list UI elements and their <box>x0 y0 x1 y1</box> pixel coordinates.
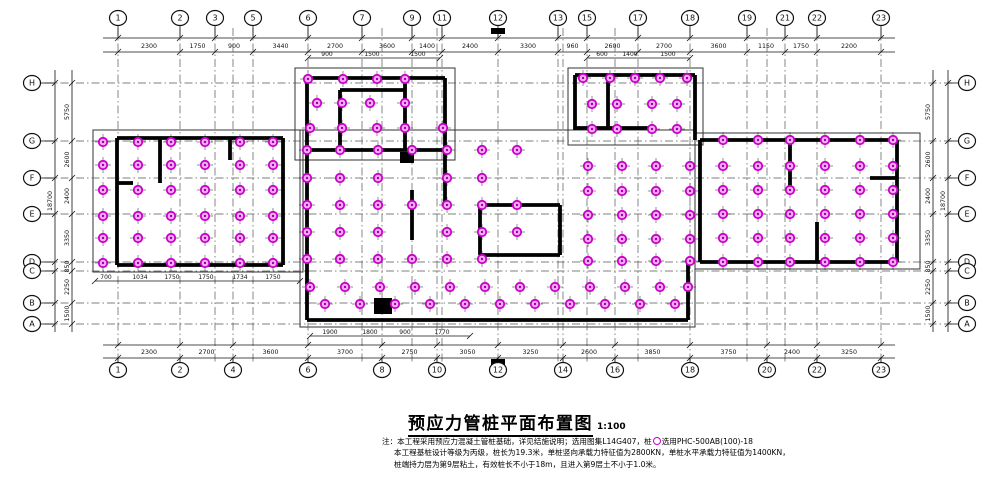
svg-text:2700: 2700 <box>656 43 672 50</box>
pile-symbol <box>614 183 630 199</box>
svg-text:A: A <box>29 320 35 329</box>
note-line-3: 桩端持力层为第9层粘土，有效桩长不小于18m，且进入第9层土不小于1.0米。 <box>394 459 790 470</box>
pile-symbol <box>474 197 490 213</box>
grid-bubble: 23 <box>873 11 890 26</box>
svg-text:960: 960 <box>566 43 578 50</box>
svg-text:2200: 2200 <box>841 43 857 50</box>
pile-symbol <box>370 251 386 267</box>
grid-bubble: 1 <box>110 363 127 378</box>
pile-symbol <box>609 96 625 112</box>
grid-bubble: 17 <box>630 11 647 26</box>
pile-symbol <box>609 121 625 137</box>
pile-symbol <box>265 157 281 173</box>
svg-text:8: 8 <box>379 366 384 375</box>
svg-text:3: 3 <box>212 14 217 23</box>
pile-symbol <box>163 230 179 246</box>
pile-symbol <box>652 70 668 86</box>
svg-text:600: 600 <box>596 51 608 58</box>
grid-bubble: 2 <box>172 363 189 378</box>
pile-symbol <box>130 208 146 224</box>
grid-bubble: G <box>959 134 976 149</box>
note-line-1: 注：本工程采用预应力混凝土管桩基础，详见结施说明；选用图集L14G407，桩选用… <box>382 436 790 447</box>
pile-symbol <box>682 183 698 199</box>
pile-symbol <box>265 182 281 198</box>
pile-symbol <box>852 206 868 222</box>
svg-text:2400: 2400 <box>462 43 478 50</box>
svg-text:1734: 1734 <box>232 274 247 281</box>
svg-text:2600: 2600 <box>64 151 71 167</box>
svg-text:1500: 1500 <box>660 51 675 58</box>
pile-symbol <box>715 206 731 222</box>
svg-text:3250: 3250 <box>522 349 538 356</box>
pile-plan-svg: 2300175090034402700360014002400330096026… <box>0 0 1000 477</box>
grid-bubble: 13 <box>550 11 567 26</box>
grid-bubble: 2 <box>172 11 189 26</box>
pile-symbol <box>614 253 630 269</box>
pile-symbol <box>130 255 146 271</box>
pile-symbol <box>547 279 563 295</box>
pile-symbol <box>575 70 591 86</box>
svg-text:15: 15 <box>582 14 592 23</box>
grid-bubble: 1 <box>110 11 127 26</box>
pile-symbol <box>512 279 528 295</box>
pile-symbol <box>370 224 386 240</box>
pile-symbol <box>782 158 798 174</box>
grid-bubble: 12 <box>490 363 507 378</box>
svg-text:1770: 1770 <box>434 329 449 336</box>
drawing-canvas: 2300175090034402700360014002400330096026… <box>0 0 1000 477</box>
svg-text:2300: 2300 <box>141 43 157 50</box>
pile-symbol <box>265 255 281 271</box>
pile-symbol <box>369 71 385 87</box>
pile-symbol <box>332 170 348 186</box>
grid-bubble: 23 <box>873 363 890 378</box>
pile-symbol <box>509 224 525 240</box>
pile-symbol <box>439 251 455 267</box>
pile-symbol <box>95 255 111 271</box>
pile-symbol <box>782 206 798 222</box>
pile-symbol <box>300 71 316 87</box>
pile-symbol <box>667 296 683 312</box>
pile-symbol <box>369 120 385 136</box>
pile-symbol <box>492 296 508 312</box>
pile-symbol <box>442 279 458 295</box>
pile-symbol <box>232 255 248 271</box>
pile-symbol <box>750 182 766 198</box>
pile-symbol <box>648 183 664 199</box>
dimension-lines: 2300175090034402700360014002400330096026… <box>47 35 951 361</box>
pile-symbol <box>580 158 596 174</box>
svg-text:16: 16 <box>610 366 620 375</box>
grid-bubble: C <box>959 264 976 279</box>
pile-symbol <box>682 207 698 223</box>
pile-symbol <box>370 170 386 186</box>
svg-text:6: 6 <box>305 366 310 375</box>
svg-text:3750: 3750 <box>720 349 736 356</box>
pile-symbol <box>197 157 213 173</box>
grid-bubble: 3 <box>207 11 224 26</box>
grid-bubble: 12 <box>490 11 507 26</box>
grid-bubble: 7 <box>354 11 371 26</box>
svg-text:23: 23 <box>876 14 886 23</box>
pile-symbol <box>397 95 413 111</box>
svg-text:G: G <box>964 137 970 146</box>
drawing-title: 预应力管桩平面布置图1:100 <box>408 409 626 434</box>
grid-bubble: H <box>24 76 41 91</box>
pile-symbol <box>852 182 868 198</box>
pile-symbol <box>782 230 798 246</box>
grid-bubble: A <box>959 317 976 332</box>
grid-bubble: 4 <box>225 363 242 378</box>
pile-symbol <box>370 142 386 158</box>
svg-text:3050: 3050 <box>459 349 475 356</box>
pile-symbol <box>682 158 698 174</box>
grid-bubble: 18 <box>682 11 699 26</box>
pile-symbol <box>852 230 868 246</box>
pile-symbol <box>332 224 348 240</box>
pile-symbol <box>527 296 543 312</box>
grid-bubble: 22 <box>809 363 826 378</box>
pile-symbol <box>584 121 600 137</box>
svg-text:17: 17 <box>633 14 643 23</box>
pile-symbol <box>477 279 493 295</box>
svg-text:1500: 1500 <box>410 51 425 58</box>
svg-text:700: 700 <box>100 274 112 281</box>
grid-bubble: A <box>24 317 41 332</box>
svg-text:1: 1 <box>115 14 120 23</box>
pile-symbol <box>648 253 664 269</box>
pile-symbol <box>644 96 660 112</box>
svg-text:850: 850 <box>925 260 932 272</box>
pile-symbol <box>750 132 766 148</box>
pile-symbol <box>95 230 111 246</box>
svg-text:2400: 2400 <box>925 188 932 204</box>
pile-symbol <box>299 197 315 213</box>
svg-text:22: 22 <box>812 14 822 23</box>
svg-text:2700: 2700 <box>198 349 214 356</box>
pile-symbol <box>750 206 766 222</box>
pile-symbol <box>404 251 420 267</box>
svg-text:C: C <box>29 267 35 276</box>
svg-text:3250: 3250 <box>841 349 857 356</box>
svg-text:1500: 1500 <box>925 305 932 321</box>
pile-symbol <box>352 296 368 312</box>
svg-text:6: 6 <box>305 14 310 23</box>
pile-symbol <box>404 197 420 213</box>
svg-text:7: 7 <box>359 14 364 23</box>
pile-symbol <box>648 158 664 174</box>
svg-text:1400: 1400 <box>622 51 637 58</box>
pile-symbol <box>817 254 833 270</box>
svg-text:2400: 2400 <box>64 188 71 204</box>
pile-symbol <box>474 142 490 158</box>
svg-text:1750: 1750 <box>189 43 205 50</box>
svg-text:3350: 3350 <box>925 230 932 246</box>
grid-bubble: E <box>959 207 976 222</box>
pile-symbol <box>197 182 213 198</box>
pile-symbol <box>817 230 833 246</box>
grid-bubble: F <box>959 171 976 186</box>
pile-symbol <box>817 132 833 148</box>
pile-symbol <box>95 208 111 224</box>
svg-text:2600: 2600 <box>604 43 620 50</box>
pile-symbol <box>852 254 868 270</box>
svg-text:9: 9 <box>409 14 414 23</box>
pile-symbol <box>614 158 630 174</box>
svg-text:F: F <box>30 174 35 183</box>
pile-symbol <box>750 254 766 270</box>
pile-symbol <box>614 207 630 223</box>
pile-symbol <box>309 95 325 111</box>
pile-symbol <box>602 70 618 86</box>
svg-text:14: 14 <box>558 366 568 375</box>
grid-bubble: E <box>24 207 41 222</box>
pile-symbol <box>332 197 348 213</box>
grid-bubble: 18 <box>682 363 699 378</box>
grid-bubble: 6 <box>300 363 317 378</box>
pile-symbol <box>397 120 413 136</box>
svg-text:3600: 3600 <box>710 43 726 50</box>
pile-symbol <box>335 71 351 87</box>
svg-text:12: 12 <box>493 14 503 23</box>
pile-symbol <box>397 71 413 87</box>
grid-bubble: G <box>24 134 41 149</box>
pile-symbol <box>580 253 596 269</box>
svg-text:2400: 2400 <box>784 349 800 356</box>
pile-symbol <box>299 251 315 267</box>
pile-symbol <box>232 157 248 173</box>
svg-text:1750: 1750 <box>793 43 809 50</box>
title-scale: 1:100 <box>597 422 626 432</box>
pile-symbol <box>669 96 685 112</box>
pile-symbol <box>715 158 731 174</box>
pile-symbol <box>817 182 833 198</box>
pile-symbol <box>669 121 685 137</box>
pile-symbol <box>644 121 660 137</box>
svg-text:1750: 1750 <box>265 274 280 281</box>
pile-symbol <box>299 142 315 158</box>
pile-symbol <box>782 254 798 270</box>
grid-bubble: 8 <box>374 363 391 378</box>
pile-symbol <box>299 224 315 240</box>
title-text: 预应力管桩平面布置图 <box>408 414 593 437</box>
pile-symbol <box>337 279 353 295</box>
svg-text:H: H <box>29 79 35 88</box>
grid-bubble: 11 <box>434 11 451 26</box>
svg-text:1750: 1750 <box>164 274 179 281</box>
pile-symbol <box>680 279 696 295</box>
bubble-stems <box>40 26 959 364</box>
pile-symbol <box>597 296 613 312</box>
pile-symbol <box>715 182 731 198</box>
grid-bubble: 20 <box>759 363 776 378</box>
pile-symbol <box>627 70 643 86</box>
pile-symbol <box>435 120 451 136</box>
svg-text:A: A <box>964 320 970 329</box>
pile-symbol <box>130 230 146 246</box>
grid-bubble: B <box>24 296 41 311</box>
building-outlines <box>93 68 920 327</box>
pile-symbol <box>232 182 248 198</box>
svg-text:3300: 3300 <box>520 43 536 50</box>
pile-symbol <box>562 296 578 312</box>
svg-text:5750: 5750 <box>925 104 932 120</box>
svg-text:5: 5 <box>250 14 255 23</box>
grid-bubble: 19 <box>739 11 756 26</box>
pile-symbol <box>334 95 350 111</box>
pile-symbol <box>302 120 318 136</box>
pile-symbol <box>317 296 333 312</box>
pile-symbol <box>232 230 248 246</box>
svg-text:2: 2 <box>177 14 182 23</box>
svg-text:18700: 18700 <box>47 191 54 211</box>
grid-bubble: F <box>24 171 41 186</box>
svg-text:2250: 2250 <box>64 279 71 295</box>
pile-symbol <box>852 158 868 174</box>
pile-symbol <box>715 230 731 246</box>
pile-symbol <box>372 279 388 295</box>
pile-symbol <box>197 255 213 271</box>
svg-text:900: 900 <box>399 329 411 336</box>
svg-text:20: 20 <box>762 366 772 375</box>
pile-symbol <box>197 208 213 224</box>
note-line-2: 本工程基桩设计等级为丙级，桩长为19.3米，单桩竖向承载力特征值为2800KN，… <box>394 447 790 458</box>
pile-symbol <box>163 182 179 198</box>
shear-walls <box>117 75 897 320</box>
svg-text:H: H <box>964 79 970 88</box>
svg-text:1034: 1034 <box>132 274 147 281</box>
pile-symbol <box>299 170 315 186</box>
svg-text:11: 11 <box>437 14 447 23</box>
svg-text:3350: 3350 <box>64 230 71 246</box>
svg-text:18700: 18700 <box>940 191 947 211</box>
svg-text:3700: 3700 <box>337 349 353 356</box>
pile-symbol <box>584 96 600 112</box>
pile-symbol <box>715 254 731 270</box>
pile-symbol <box>632 296 648 312</box>
grid-bubble: 9 <box>404 11 421 26</box>
pile-symbol <box>580 207 596 223</box>
grid-bubbles: 1235679111213151718192122231246810121416… <box>24 11 976 378</box>
grid-bubble: 21 <box>777 11 794 26</box>
svg-text:1400: 1400 <box>419 43 435 50</box>
pile-symbol <box>439 197 455 213</box>
pile-symbol <box>95 134 111 150</box>
pile-symbol <box>652 279 668 295</box>
svg-text:G: G <box>29 137 35 146</box>
svg-text:22: 22 <box>812 366 822 375</box>
svg-text:E: E <box>29 210 34 219</box>
pile-symbol <box>265 230 281 246</box>
grid-bubble: 15 <box>579 11 596 26</box>
svg-text:18: 18 <box>685 14 695 23</box>
svg-text:3600: 3600 <box>379 43 395 50</box>
pile-symbol <box>715 132 731 148</box>
pile-symbol <box>422 296 438 312</box>
svg-text:2600: 2600 <box>925 151 932 167</box>
pile-symbol <box>509 142 525 158</box>
svg-text:10: 10 <box>432 366 442 375</box>
svg-text:F: F <box>965 174 970 183</box>
pile-symbol <box>265 208 281 224</box>
svg-text:2: 2 <box>177 366 182 375</box>
svg-text:B: B <box>29 299 35 308</box>
pile-symbol <box>130 157 146 173</box>
pile-symbol <box>163 157 179 173</box>
svg-text:18: 18 <box>685 366 695 375</box>
svg-text:B: B <box>964 299 970 308</box>
pile-symbol <box>682 231 698 247</box>
pile-symbol <box>682 253 698 269</box>
svg-text:1500: 1500 <box>64 305 71 321</box>
svg-text:1500: 1500 <box>364 51 379 58</box>
svg-text:3850: 3850 <box>644 349 660 356</box>
svg-text:2300: 2300 <box>141 349 157 356</box>
pile-symbol <box>95 157 111 173</box>
pile-symbol <box>474 224 490 240</box>
pile-symbol <box>782 182 798 198</box>
svg-text:13: 13 <box>553 14 563 23</box>
pile-symbol <box>232 208 248 224</box>
pile-symbol <box>509 197 525 213</box>
svg-text:3600: 3600 <box>262 349 278 356</box>
pile-symbol <box>782 132 798 148</box>
svg-text:2750: 2750 <box>401 349 417 356</box>
pile-symbol <box>580 183 596 199</box>
pile-symbol <box>614 231 630 247</box>
pile-symbol <box>95 182 111 198</box>
pile-symbol <box>817 206 833 222</box>
svg-text:1: 1 <box>115 366 120 375</box>
pile-symbol <box>332 251 348 267</box>
grid-bubble: 5 <box>245 11 262 26</box>
svg-text:23: 23 <box>876 366 886 375</box>
svg-text:900: 900 <box>321 51 333 58</box>
drawing-notes: 注：本工程采用预应力混凝土管桩基础，详见结施说明；选用图集L14G407，桩选用… <box>382 436 790 470</box>
svg-text:2250: 2250 <box>925 279 932 295</box>
pile-symbol <box>582 279 598 295</box>
pile-symbol <box>362 95 378 111</box>
pile-symbol <box>332 142 348 158</box>
pile-symbol <box>163 255 179 271</box>
pile-symbol <box>750 230 766 246</box>
pile-symbol <box>457 296 473 312</box>
pile-symbol <box>334 120 350 136</box>
svg-text:21: 21 <box>780 14 790 23</box>
svg-text:12: 12 <box>493 366 503 375</box>
svg-text:4: 4 <box>230 366 235 375</box>
svg-text:1800: 1800 <box>362 329 377 336</box>
grid-bubble: 14 <box>555 363 572 378</box>
grid-bubble: B <box>959 296 976 311</box>
pile-symbol <box>370 197 386 213</box>
pile-symbol <box>302 279 318 295</box>
pile-symbol <box>439 170 455 186</box>
pile-symbol <box>580 231 596 247</box>
svg-text:1150: 1150 <box>758 43 774 50</box>
svg-text:3440: 3440 <box>272 43 288 50</box>
pile-symbol <box>407 279 423 295</box>
pile-symbol <box>679 70 695 86</box>
grid-bubble: 22 <box>809 11 826 26</box>
grid-bubble: C <box>24 264 41 279</box>
grid-bubble: 6 <box>300 11 317 26</box>
svg-text:C: C <box>964 267 970 276</box>
svg-text:19: 19 <box>742 14 752 23</box>
svg-text:1750: 1750 <box>198 274 213 281</box>
grid-bubble: 10 <box>429 363 446 378</box>
pile-symbol <box>197 230 213 246</box>
